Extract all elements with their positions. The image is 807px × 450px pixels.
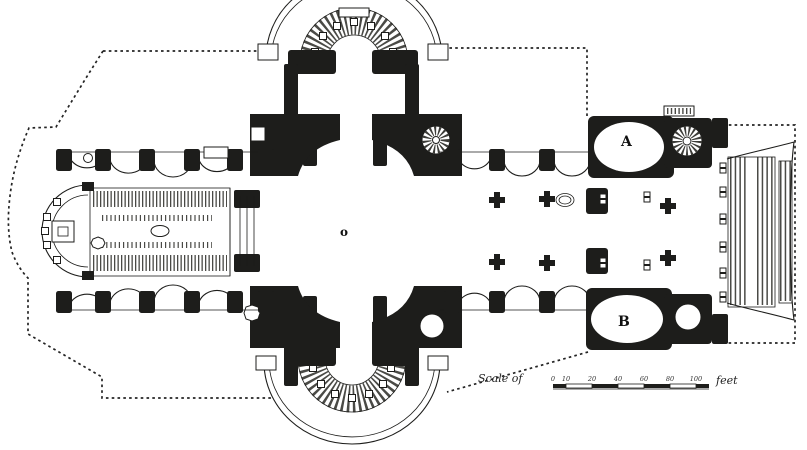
scale-prefix-label: Scale of: [478, 372, 524, 385]
scale-tick-20: 20: [587, 375, 596, 383]
nave-aisle-walls: [440, 149, 605, 313]
font-ring: [556, 194, 574, 207]
circular-chamber: [420, 314, 444, 338]
floor-plan-drawing: o: [0, 0, 807, 450]
scale-bar-segments: [553, 384, 709, 389]
nave-piers: [489, 188, 608, 274]
north-portico: [258, 0, 448, 74]
pulpit: [91, 237, 105, 249]
high-altar: [52, 221, 74, 242]
cathedral-floor-plan-engraving: o: [0, 0, 807, 450]
scale-tick-10: 10: [562, 375, 570, 383]
scale-tick-100: 100: [690, 375, 702, 383]
scale-tick-80: 80: [666, 375, 674, 383]
west-block: [586, 106, 728, 350]
scale-tick-40: 40: [613, 375, 622, 383]
dean-stair-room: [675, 304, 701, 330]
turret-stair: [84, 154, 93, 163]
vestry-square-room: [251, 127, 265, 141]
scale-tick-60: 60: [640, 375, 648, 383]
lectern: [151, 226, 169, 237]
scale-unit-label: feet: [715, 374, 738, 387]
apse: [42, 182, 95, 280]
dome-crossing-piers: [244, 114, 462, 348]
dome-center-label: o: [340, 225, 348, 239]
column-base-pairs: [600, 163, 726, 302]
spiral-stair-icon-west: [672, 126, 702, 156]
scale-tick-0: 0: [551, 375, 555, 383]
vestry-octagon-room: [244, 305, 260, 321]
scale-bar: Scale of 0 10 20 40 60 80 100 feet: [478, 372, 738, 389]
choir-stalls: [90, 188, 260, 276]
north-door-porch: [204, 147, 228, 158]
west-steps: [727, 142, 794, 320]
chapel-a-label: A: [620, 134, 633, 150]
chapel-b-label: B: [618, 314, 630, 330]
